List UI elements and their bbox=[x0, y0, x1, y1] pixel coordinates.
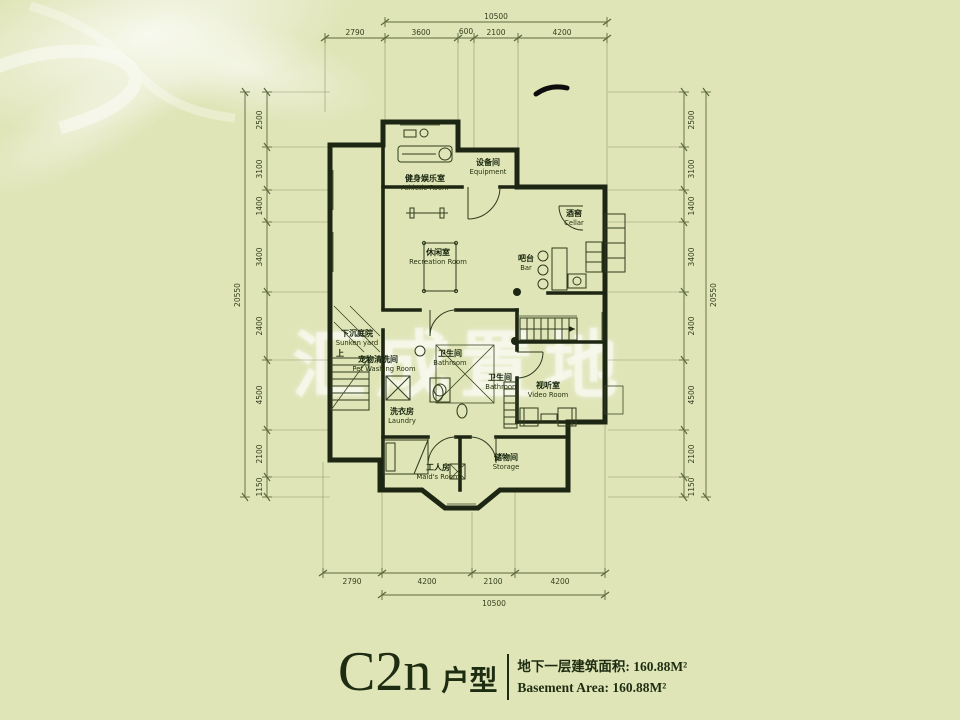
room-label-video-cn: 视听室 bbox=[536, 380, 560, 390]
room-label-bar-cn: 吧台 bbox=[518, 253, 534, 263]
room-label-recreation-cn: 休闲室 bbox=[425, 247, 450, 257]
pet-washing-tub-icon bbox=[386, 376, 410, 400]
room-label-storage-cn: 储物间 bbox=[493, 452, 518, 462]
dim-left-5: 4500 bbox=[255, 385, 264, 404]
bar-counter-icons bbox=[538, 242, 602, 290]
room-label-bathroom2-cn: 卫生间 bbox=[488, 372, 512, 382]
dim-right-6: 2100 bbox=[687, 444, 696, 463]
room-label-laundry-en: Laundry bbox=[388, 417, 416, 425]
dim-right-total: 20550 bbox=[709, 283, 718, 307]
dim-right-4: 2400 bbox=[687, 316, 696, 335]
stairs-up-label: 上 bbox=[336, 348, 344, 358]
dim-left-total: 20550 bbox=[233, 283, 242, 307]
title-block: C2n 户型 地下一层建筑面积: 160.88M² Basement Area:… bbox=[338, 644, 687, 700]
dim-top-total: 10500 bbox=[484, 12, 508, 21]
north-mark bbox=[536, 87, 567, 94]
title-divider bbox=[507, 654, 509, 700]
dim-top-4: 4200 bbox=[552, 28, 571, 37]
room-label-bathroom1-cn: 卫生间 bbox=[438, 348, 462, 358]
dim-left-4: 2400 bbox=[255, 316, 264, 335]
room-label-laundry-cn: 洗衣房 bbox=[390, 406, 414, 416]
outer-walls bbox=[330, 122, 605, 508]
room-label-athletic-en: Athletic Room bbox=[401, 184, 449, 192]
cellar-shelving-icon bbox=[605, 214, 625, 272]
dim-top-2: 600 bbox=[459, 27, 474, 36]
dim-left-2: 1400 bbox=[255, 196, 264, 215]
dim-left-0: 2500 bbox=[255, 110, 264, 129]
floorplan-drawing: 2790 3600 600 2100 4200 10500 2790 4200 … bbox=[0, 0, 960, 720]
room-label-video-en: Video Room bbox=[528, 391, 569, 399]
dim-left-3: 3400 bbox=[255, 247, 264, 266]
room-label-maid-en: Maid's Room bbox=[416, 473, 460, 481]
plan-type-label: 户型 bbox=[441, 659, 497, 699]
room-label-pet-washing-en: Pet Washing Room bbox=[352, 365, 416, 373]
dim-left-6: 2100 bbox=[255, 444, 264, 463]
main-staircase-icon bbox=[517, 316, 577, 340]
dim-right-5: 4500 bbox=[687, 385, 696, 404]
area-en: Basement Area: 160.88M² bbox=[517, 678, 687, 699]
dim-right-2: 1400 bbox=[687, 196, 696, 215]
area-cn: 地下一层建筑面积: 160.88M² bbox=[517, 657, 687, 678]
dim-bottom-3: 4200 bbox=[550, 577, 569, 586]
room-label-equipment-en: Equipment bbox=[470, 168, 507, 176]
dim-right-0: 2500 bbox=[687, 110, 696, 129]
room-label-equipment-cn: 设备间 bbox=[476, 157, 500, 167]
extension-lines bbox=[272, 42, 680, 569]
dim-left-7: 1150 bbox=[255, 477, 264, 496]
dim-right-7: 1150 bbox=[687, 477, 696, 496]
dim-top-0: 2790 bbox=[345, 28, 364, 37]
room-label-bar-en: Bar bbox=[520, 264, 532, 272]
dim-top-1: 3600 bbox=[411, 28, 430, 37]
room-label-sunken-yard-en: Sunken yard bbox=[336, 339, 378, 347]
room-label-sunken-yard-cn: 下沉庭院 bbox=[341, 328, 373, 338]
dim-bottom-2: 2100 bbox=[483, 577, 502, 586]
room-label-cellar-en: Cellar bbox=[564, 219, 584, 227]
room-label-bathroom1-en: Bathroom bbox=[433, 359, 467, 367]
dim-right-3: 3400 bbox=[687, 247, 696, 266]
room-label-athletic-cn: 健身娱乐室 bbox=[405, 173, 445, 183]
room-label-storage-en: Storage bbox=[493, 463, 520, 471]
dim-bottom-1: 4200 bbox=[417, 577, 436, 586]
dim-right-1: 3100 bbox=[687, 159, 696, 178]
room-labels: 设备间 Equipment 健身娱乐室 Athletic Room 休闲室 Re… bbox=[336, 157, 584, 481]
dim-bottom-0: 2790 bbox=[342, 577, 361, 586]
room-label-pet-washing-cn: 宠物清洗间 bbox=[358, 354, 398, 364]
windows bbox=[333, 125, 602, 504]
plan-model: C2n bbox=[338, 644, 431, 700]
area-info: 地下一层建筑面积: 160.88M² Basement Area: 160.88… bbox=[517, 657, 687, 699]
decorative-ribbon bbox=[0, 6, 235, 128]
floorplan-page: 汇成置地 bbox=[0, 0, 960, 720]
room-label-bathroom2-en: Bathroom bbox=[485, 383, 519, 391]
room-label-cellar-cn: 酒窖 bbox=[566, 208, 582, 218]
dim-top-3: 2100 bbox=[486, 28, 505, 37]
room-label-recreation-en: Recreation Room bbox=[409, 258, 467, 266]
room-label-maid-cn: 工人房 bbox=[426, 462, 450, 472]
dim-left-1: 3100 bbox=[255, 159, 264, 178]
dim-bottom-total: 10500 bbox=[482, 599, 506, 608]
